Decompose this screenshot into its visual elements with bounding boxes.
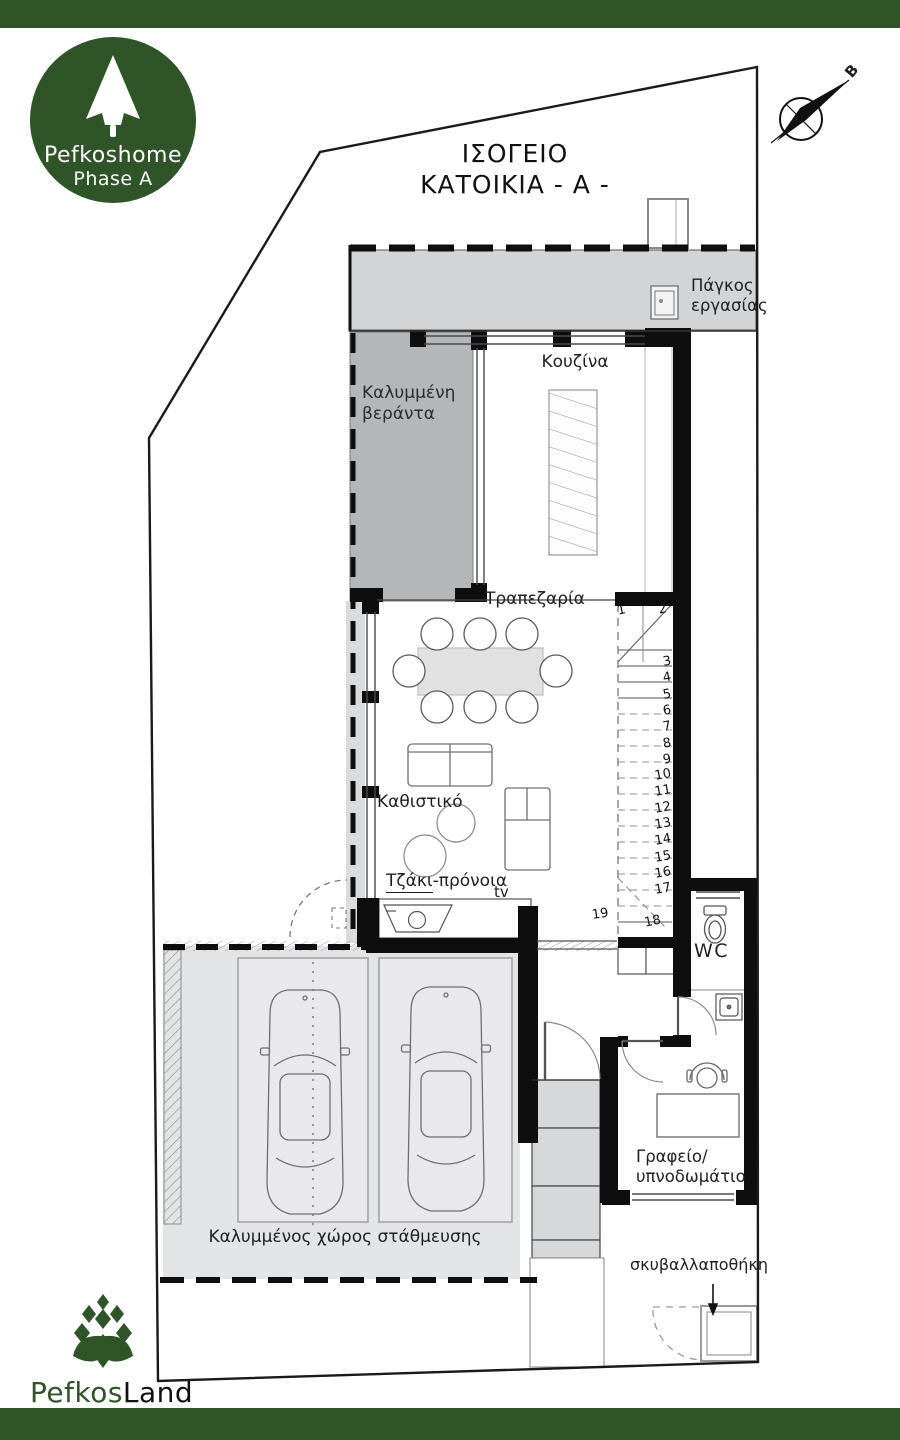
garbage-door-arc [653, 1310, 703, 1360]
toilet [704, 906, 726, 943]
wc-sink [716, 994, 742, 1020]
label-wc: WC [694, 940, 729, 963]
veranda-line1: Καλυμμένη [362, 383, 455, 404]
work-bench-line2: εργασίας [691, 296, 768, 316]
label-garbage: σκυβαλλαποθήκη [630, 1255, 768, 1275]
stair-step-number: 12 [653, 799, 672, 817]
title-line1: ΙΣΟΓΕΙΟ [370, 139, 660, 170]
chimney-column [648, 199, 688, 248]
office-chair [687, 1063, 727, 1088]
floor-plan-svg [0, 0, 900, 1440]
office-line2: υπνοδωμάτιο [636, 1167, 746, 1187]
logo-bottom-part1: Pefkos [30, 1376, 123, 1409]
title-line2: ΚΑΤΟΙΚΙΑ - Α - [370, 170, 660, 201]
kitchen-tall-units [645, 346, 672, 597]
cupboards [618, 947, 674, 974]
entrance-steps [532, 1080, 600, 1258]
kitchen-sink [651, 286, 678, 319]
label-living: Καθιστικό [377, 792, 463, 813]
garbage-box [701, 1306, 757, 1361]
stair-step-number: 19 [591, 906, 609, 923]
label-dining: Τραπεζαρία [455, 589, 615, 610]
label-work-bench: Πάγκος εργασίας [691, 276, 768, 316]
pefkosland-logo: PefkosLand [30, 1292, 230, 1409]
hatched-strip [164, 950, 181, 1224]
label-office: Γραφείο/ υπνοδωμάτιο [636, 1147, 746, 1187]
top-green-bar [0, 0, 900, 28]
kitchen-island [549, 390, 597, 555]
work-bench-line1: Πάγκος [691, 276, 768, 296]
compass-icon [771, 80, 849, 143]
label-fireplace: Τζάκι-πρόνοια [386, 871, 507, 892]
walkway [530, 1258, 604, 1367]
stair-step-number: 17 [653, 880, 672, 898]
bottom-green-bar [0, 1408, 900, 1440]
desk [657, 1094, 739, 1137]
label-tv: tv [494, 883, 509, 901]
page-title: ΙΣΟΓΕΙΟ ΚΑΤΟΙΚΙΑ - Α - [370, 139, 660, 200]
covered-veranda-area [350, 332, 473, 601]
fireplace-counter [379, 899, 531, 938]
fireplace-underlined: Τζάκι [386, 871, 433, 893]
pefkoshome-logo: Pefkoshome Phase A [30, 37, 196, 203]
label-veranda: Καλυμμένη βεράντα [362, 383, 455, 424]
pinecone-icon [70, 1292, 136, 1372]
veranda-line2: βεράντα [362, 404, 455, 425]
logo-bottom-part2: Land [123, 1376, 193, 1409]
logo-bottom-wordmark: PefkosLand [30, 1376, 230, 1409]
office-line1: Γραφείο/ [636, 1147, 746, 1167]
label-kitchen: Κουζίνα [500, 352, 650, 373]
dining-table [418, 648, 543, 695]
logo-top-line2: Phase A [73, 168, 152, 190]
label-parking: Καλυμμένος χώρος στάθμευσης [205, 1227, 485, 1248]
logo-top-line1: Pefkoshome [44, 143, 182, 168]
stair-step-number: 15 [653, 848, 672, 866]
floor-plan-page: ΙΣΟΓΕΙΟ ΚΑΤΟΙΚΙΑ - Α - Πάγκος εργασίας Κ… [0, 0, 900, 1440]
pine-tree-icon [78, 53, 148, 141]
